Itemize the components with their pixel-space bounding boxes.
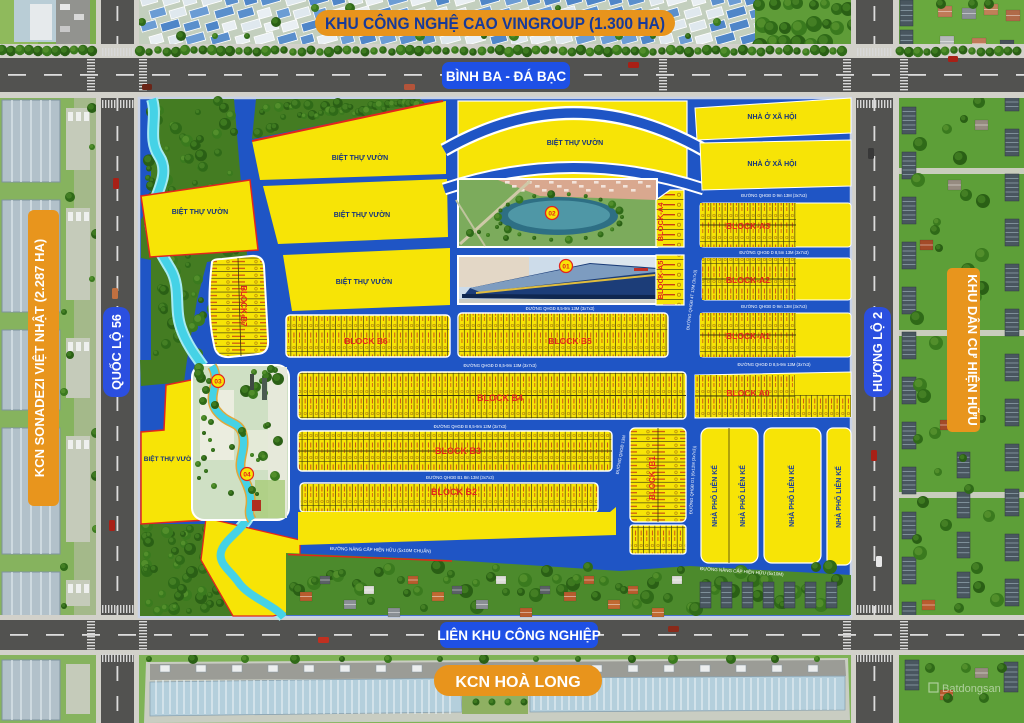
svg-text:BLOCK-A1: BLOCK-A1 [726,331,770,341]
svg-text:KCN SONADEZI VIỆT NHẬT (2.287: KCN SONADEZI VIỆT NHẬT (2.287 HA) [32,239,47,477]
svg-text:QUỐC LỘ 56: QUỐC LỘ 56 [109,314,124,390]
svg-text:BLOCK B5: BLOCK B5 [548,336,592,346]
svg-text:BIỆT THỰ VƯỜN: BIỆT THỰ VƯỜN [547,138,603,147]
svg-text:Batdongsan: Batdongsan [942,683,1001,695]
svg-text:BLOCK B4: BLOCK B4 [477,393,523,403]
svg-text:03: 03 [214,379,222,386]
svg-text:BIỆT THỰ VƯỜN: BIỆT THỰ VƯỜN [336,277,392,286]
svg-text:NHÀ Ở XÃ HỘI: NHÀ Ở XÃ HỘI [747,112,796,121]
svg-text:BLOCK (B1: BLOCK (B1 [648,456,657,500]
svg-text:04: 04 [243,472,251,479]
svg-text:ĐƯỜNG QHGĐ D 8,5m 13M (3x7x3): ĐƯỜNG QHGĐ D 8,5m 13M (3x7x3) [739,250,809,255]
svg-text:HƯƠNG LỘ 2: HƯƠNG LỘ 2 [870,312,885,392]
svg-text:KCN HOÀ LONG: KCN HOÀ LONG [455,672,580,691]
svg-text:ĐƯỜNG QHGĐ D 8,5-9m 13M (3x7x3: ĐƯỜNG QHGĐ D 8,5-9m 13M (3x7x3) [463,363,537,368]
svg-text:NHÀ Ở XÃ HỘI: NHÀ Ở XÃ HỘI [747,159,796,168]
svg-text:BIỆT THỰ VƯỜN: BIỆT THỰ VƯỜN [172,207,228,216]
svg-text:02: 02 [548,211,556,218]
svg-text:ĐƯỜNG QHGĐ D 8,5-9m 13M (3x7x3: ĐƯỜNG QHGĐ D 8,5-9m 13M (3x7x3) [737,362,811,367]
svg-text:BLOCK-A3: BLOCK-A3 [726,221,770,231]
svg-text:BLOCK A0: BLOCK A0 [726,388,769,398]
svg-text:BLOCK-A4: BLOCK-A4 [656,202,665,242]
svg-text:BIỆT THỰ VƯỜN: BIỆT THỰ VƯỜN [332,153,388,162]
svg-text:BLOCK B2: BLOCK B2 [431,487,477,497]
svg-text:BLOCK-B7: BLOCK-B7 [239,285,248,327]
svg-text:KHU CÔNG NGHỆ CAO VINGROUP (1.: KHU CÔNG NGHỆ CAO VINGROUP (1.300 HA) [325,14,665,33]
svg-text:ĐƯỜNG QHGĐ B 8,5-9m 13M (3x7x3: ĐƯỜNG QHGĐ B 8,5-9m 13M (3x7x3) [434,424,507,429]
svg-text:BLOCK B6: BLOCK B6 [344,336,388,346]
svg-text:KHU DÂN CƯ HIỆN HỮU: KHU DÂN CƯ HIỆN HỮU [965,274,980,426]
svg-text:BLOCK-A2: BLOCK-A2 [726,275,770,285]
svg-text:ĐƯỜNG QHGĐ D 9m 13M (3x7x3): ĐƯỜNG QHGĐ D 9m 13M (3x7x3) [741,193,807,198]
svg-text:BIỆT THỰ VƯỜN: BIỆT THỰ VƯỜN [144,454,197,463]
svg-text:ĐƯỜNG QHGĐ B1 8m 13M (3x7x3): ĐƯỜNG QHGĐ B1 8m 13M (3x7x3) [426,475,495,480]
svg-text:01: 01 [562,264,570,271]
svg-text:BIỆT THỰ VƯỜN: BIỆT THỰ VƯỜN [334,210,390,219]
svg-text:BLOCK B3: BLOCK B3 [435,446,481,456]
svg-text:BLOCK-A5: BLOCK-A5 [656,261,665,300]
svg-text:ĐƯỜNG QHGĐ D 9m 13M (3x7x3): ĐƯỜNG QHGĐ D 9m 13M (3x7x3) [741,304,807,309]
svg-text:LIÊN KHU CÔNG NGHIỆP: LIÊN KHU CÔNG NGHIỆP [437,628,601,643]
svg-text:BÌNH BA - ĐÁ BẠC: BÌNH BA - ĐÁ BẠC [446,69,566,84]
svg-text:ĐƯỜNG QHGĐ 8,5-9m 13M (3x7x3): ĐƯỜNG QHGĐ 8,5-9m 13M (3x7x3) [526,306,595,311]
